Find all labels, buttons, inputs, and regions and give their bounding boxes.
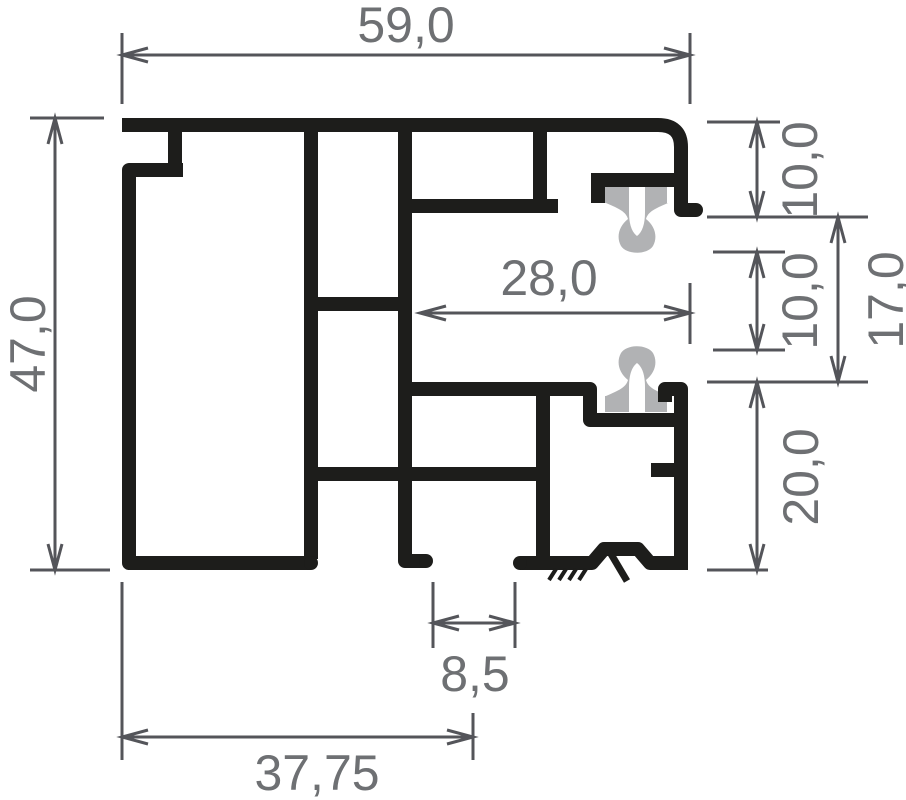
glazing-gasket-bottom [605, 346, 668, 412]
label-bottom-slot: 8,5 [440, 646, 510, 702]
dimension-base-width [122, 582, 473, 760]
serration-tooth [569, 569, 576, 580]
label-channel-height: 17,0 [858, 251, 906, 348]
extension-lines-85 [433, 582, 515, 648]
extension-lines-3775 [122, 582, 473, 760]
endcap-wall2-foot [419, 554, 433, 568]
label-overall-height: 47,0 [0, 295, 56, 392]
label-base-width: 37,75 [254, 745, 379, 800]
serration-tooth [579, 569, 586, 580]
endcap-top-foot [689, 203, 703, 217]
glazing-gasket-top [605, 187, 668, 253]
profile-drawing-canvas: 59,0 47,0 28,0 10,0 10,0 17,0 20,0 8,5 3… [0, 0, 906, 800]
profile-drawing: 59,0 47,0 28,0 10,0 10,0 17,0 20,0 8,5 3… [0, 0, 906, 800]
label-rebate-top: 10,0 [772, 121, 828, 218]
profile-left-and-bottom-wall [129, 170, 311, 563]
dimension-bottom-chamber [707, 382, 768, 570]
dimension-bottom-slot [433, 582, 515, 648]
serration-spur [611, 554, 627, 581]
serration-tooth [559, 569, 566, 580]
profile-wall-2 [405, 120, 426, 561]
serration-tooth [549, 569, 556, 580]
label-bottom-chamber: 20,0 [773, 428, 829, 525]
label-gasket-gap: 10,0 [772, 252, 828, 349]
endcap-bottom-right-base [513, 556, 527, 570]
label-channel-depth: 28,0 [500, 250, 597, 306]
endcap-bottom-left-wall [304, 556, 318, 570]
label-overall-width: 59,0 [357, 0, 454, 53]
